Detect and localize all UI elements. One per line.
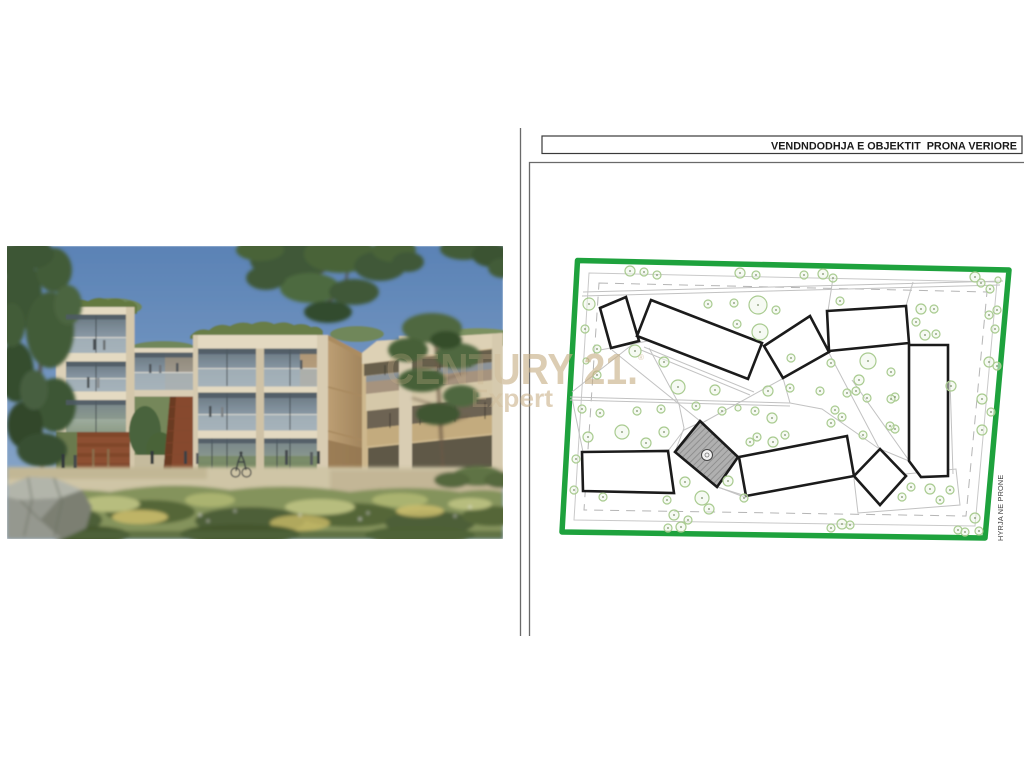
- svg-text:HYRJA NE PRONE: HYRJA NE PRONE: [996, 475, 1005, 541]
- svg-text:®: ®: [638, 353, 644, 362]
- svg-text:VENDNDODHJA E OBJEKTIT PRONA: VENDNDODHJA E OBJEKTIT PRONA VERIORE: [771, 141, 1017, 153]
